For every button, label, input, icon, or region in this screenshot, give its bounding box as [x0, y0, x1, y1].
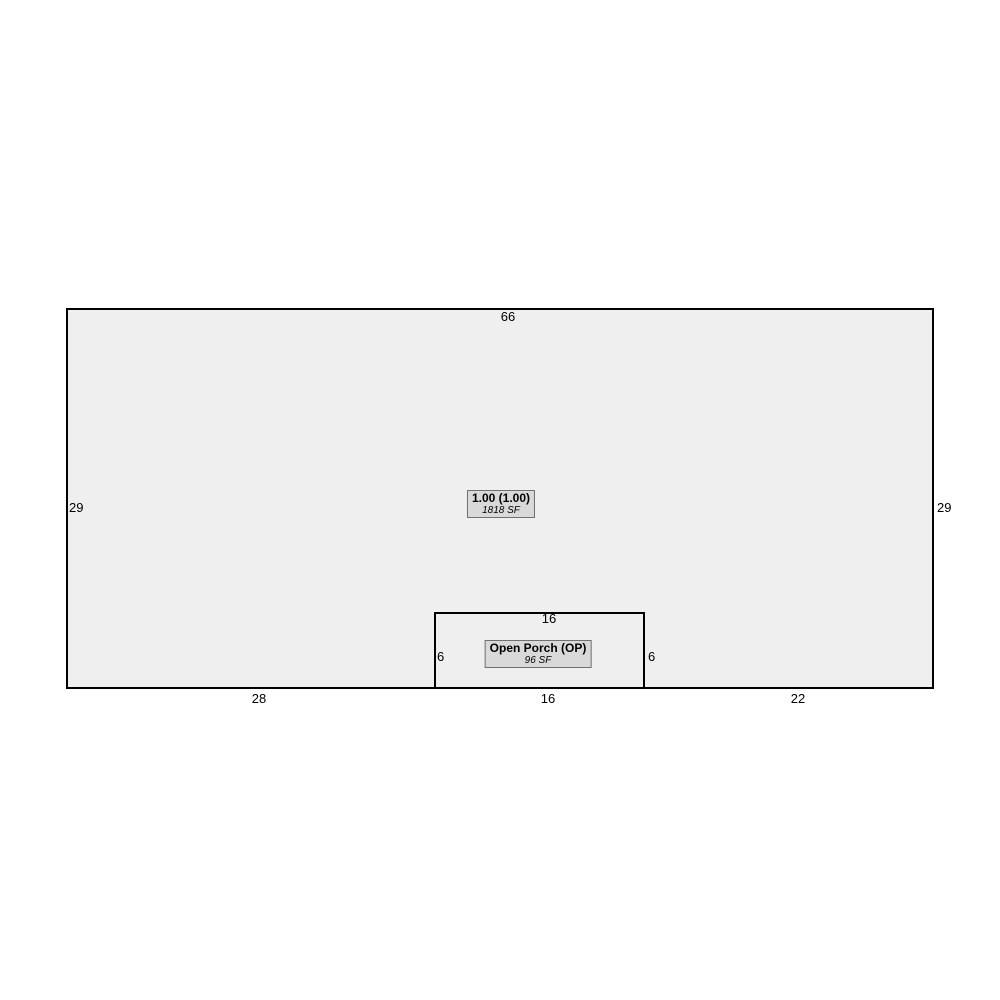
dim-main-left: 29: [69, 501, 83, 514]
dim-main-bottom-center: 16: [535, 692, 561, 705]
dim-porch-top: 16: [536, 612, 562, 625]
open-porch-label-name: Open Porch (OP): [490, 642, 587, 655]
dim-main-top: 66: [495, 310, 521, 323]
dim-main-bottom-right: 22: [785, 692, 811, 705]
main-building-label-size: 1818 SF: [472, 505, 530, 516]
dim-porch-right: 6: [648, 650, 655, 663]
main-building-label-name: 1.00 (1.00): [472, 492, 530, 505]
dim-porch-left: 6: [437, 650, 444, 663]
dim-main-bottom-left: 28: [246, 692, 272, 705]
dim-main-right: 29: [937, 501, 951, 514]
open-porch-label: Open Porch (OP) 96 SF: [485, 640, 592, 668]
main-building-label: 1.00 (1.00) 1818 SF: [467, 490, 535, 518]
open-porch-label-size: 96 SF: [490, 655, 587, 666]
property-sketch-canvas: 66 29 29 28 16 22 16 6 6 1.00 (1.00) 181…: [0, 0, 1000, 1000]
